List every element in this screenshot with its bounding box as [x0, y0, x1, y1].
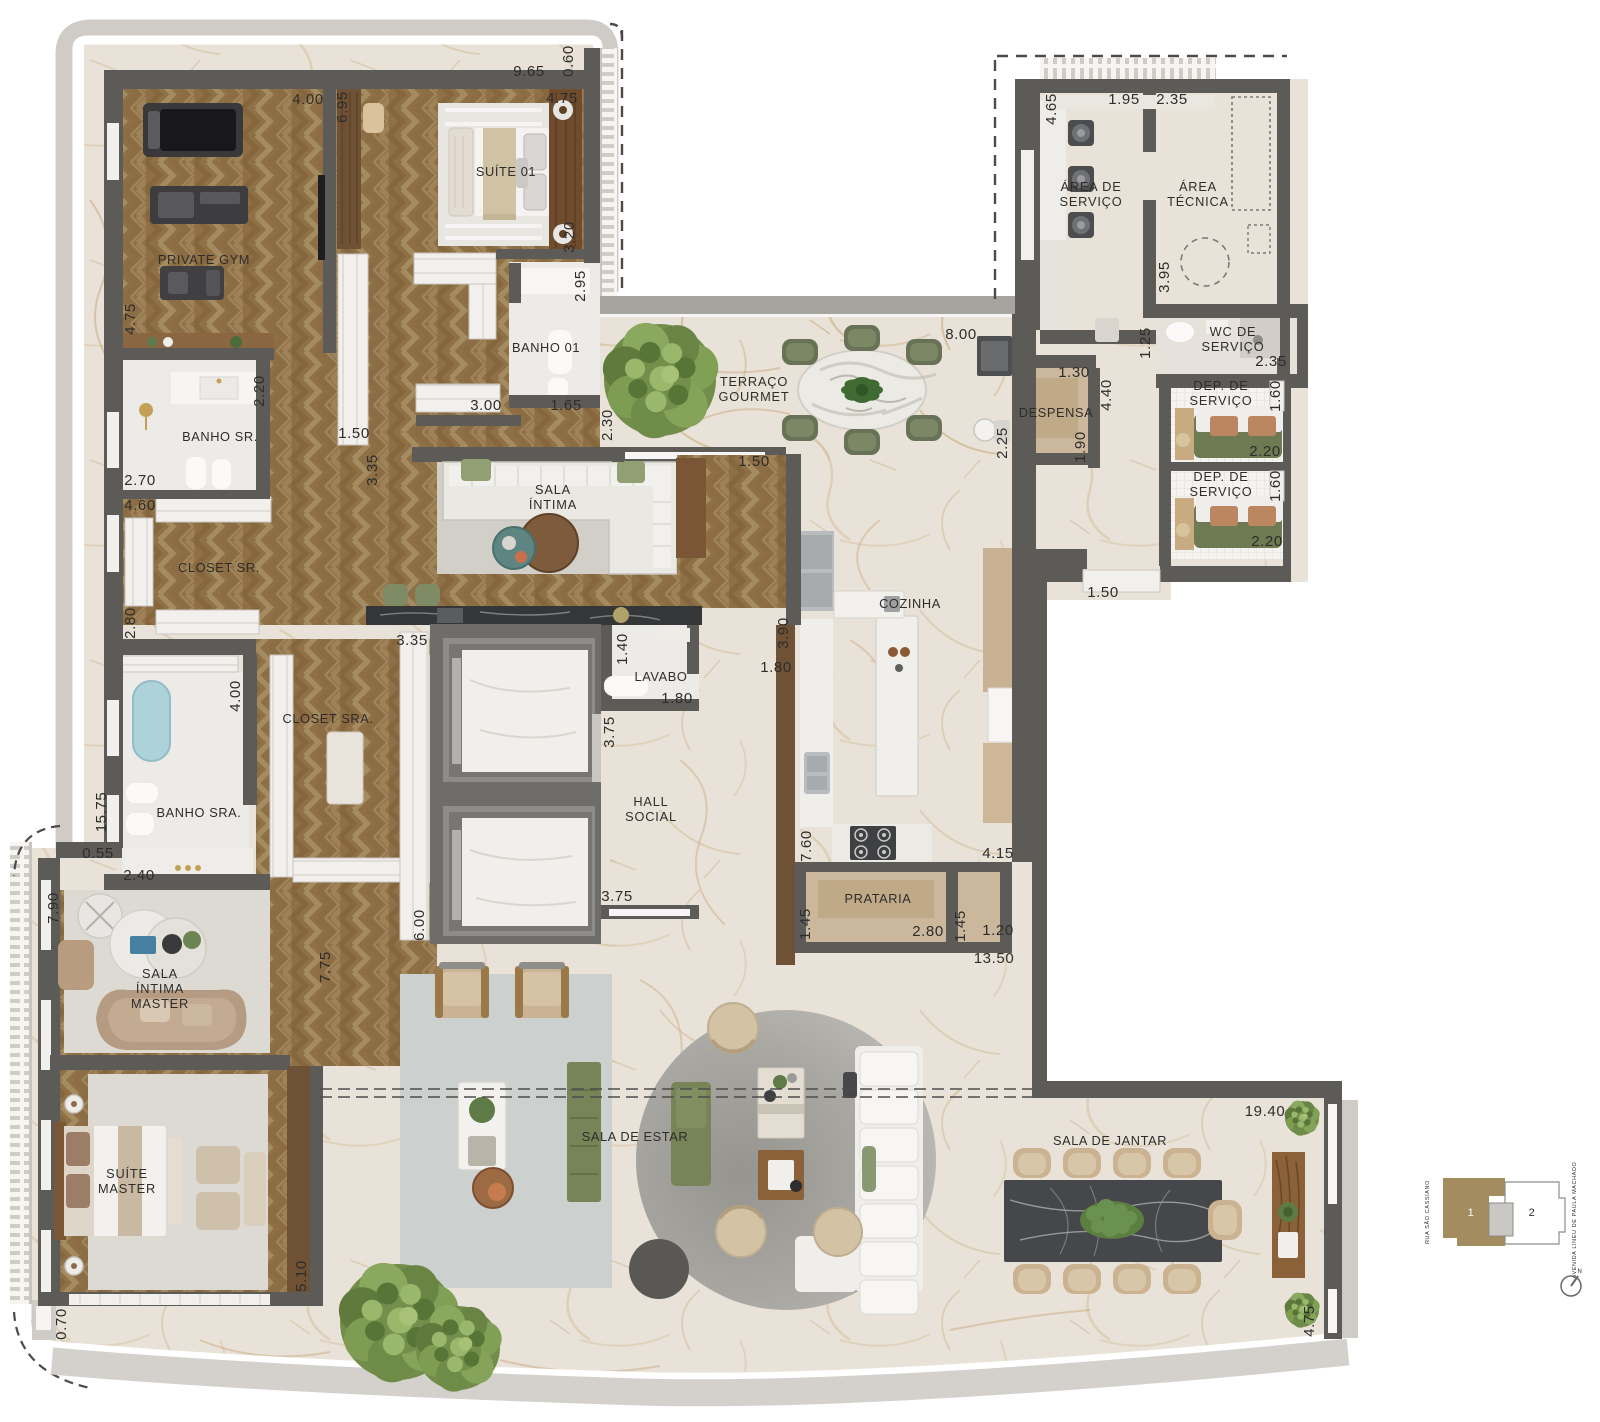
- svg-text:ÁREA: ÁREA: [1179, 179, 1217, 194]
- svg-text:6.95: 6.95: [334, 91, 351, 123]
- svg-text:TÉCNICA: TÉCNICA: [1167, 194, 1229, 209]
- svg-text:3.90: 3.90: [775, 617, 792, 649]
- svg-text:4.40: 4.40: [1098, 379, 1115, 411]
- svg-text:1: 1: [1468, 1207, 1475, 1219]
- svg-text:1.95: 1.95: [1108, 91, 1140, 108]
- svg-text:SUÍTE 01: SUÍTE 01: [476, 164, 536, 179]
- svg-text:DEP. DE: DEP. DE: [1193, 469, 1248, 484]
- svg-text:7.60: 7.60: [798, 830, 815, 862]
- svg-text:1.80: 1.80: [760, 659, 792, 676]
- svg-text:DESPENSA: DESPENSA: [1019, 405, 1094, 420]
- svg-text:2.35: 2.35: [1156, 91, 1188, 108]
- svg-text:2.35: 2.35: [1255, 353, 1287, 370]
- svg-text:2.95: 2.95: [572, 270, 589, 302]
- svg-text:3.95: 3.95: [1156, 261, 1173, 293]
- svg-text:8.00: 8.00: [945, 326, 977, 343]
- svg-text:1.60: 1.60: [1267, 470, 1284, 502]
- svg-text:5.10: 5.10: [293, 1260, 310, 1292]
- svg-text:1.90: 1.90: [1072, 431, 1089, 463]
- svg-text:PRATARIA: PRATARIA: [845, 891, 912, 906]
- svg-text:WC DE: WC DE: [1210, 324, 1257, 339]
- svg-text:COZINHA: COZINHA: [879, 596, 941, 611]
- svg-text:MASTER: MASTER: [98, 1181, 156, 1196]
- svg-text:1.60: 1.60: [1267, 380, 1284, 412]
- svg-text:SALA: SALA: [535, 482, 571, 497]
- svg-text:4.75: 4.75: [546, 90, 578, 107]
- svg-text:LAVABO: LAVABO: [635, 669, 688, 684]
- svg-text:GOURMET: GOURMET: [718, 389, 789, 404]
- svg-text:1.80: 1.80: [661, 690, 693, 707]
- svg-text:2: 2: [1529, 1207, 1536, 1219]
- svg-text:4.00: 4.00: [227, 680, 244, 712]
- svg-text:6.00: 6.00: [411, 909, 428, 941]
- svg-text:BANHO 01: BANHO 01: [512, 340, 580, 355]
- svg-text:1.65: 1.65: [550, 397, 582, 414]
- svg-text:SERVIÇO: SERVIÇO: [1190, 393, 1253, 408]
- svg-text:15.75: 15.75: [93, 792, 110, 833]
- svg-text:7.75: 7.75: [317, 951, 334, 983]
- svg-text:SUÍTE: SUÍTE: [106, 1166, 148, 1181]
- svg-text:2.20: 2.20: [251, 375, 268, 407]
- svg-text:3.20: 3.20: [561, 221, 578, 253]
- svg-text:SALA: SALA: [142, 966, 178, 981]
- svg-text:HALL: HALL: [633, 794, 668, 809]
- svg-text:CLOSET SR.: CLOSET SR.: [178, 560, 260, 575]
- svg-text:AVENIDA LINEU DE PAULA MACHADO: AVENIDA LINEU DE PAULA MACHADO: [1572, 1161, 1578, 1278]
- svg-text:BANHO SRA.: BANHO SRA.: [157, 805, 242, 820]
- svg-text:4.60: 4.60: [124, 497, 156, 514]
- svg-text:2.20: 2.20: [1251, 533, 1283, 550]
- svg-text:ÍNTIMA: ÍNTIMA: [529, 497, 577, 512]
- svg-text:SERVIÇO: SERVIÇO: [1190, 484, 1253, 499]
- svg-text:4.00: 4.00: [292, 91, 324, 108]
- svg-text:PRIVATE GYM: PRIVATE GYM: [158, 252, 250, 267]
- svg-text:4.15: 4.15: [982, 845, 1014, 862]
- svg-text:0.60: 0.60: [560, 45, 577, 77]
- svg-text:3.00: 3.00: [470, 397, 502, 414]
- svg-text:SERVIÇO: SERVIÇO: [1060, 194, 1123, 209]
- svg-text:SALA DE JANTAR: SALA DE JANTAR: [1053, 1133, 1167, 1148]
- svg-text:1.50: 1.50: [338, 425, 370, 442]
- svg-text:1.50: 1.50: [738, 453, 770, 470]
- svg-text:SALA DE ESTAR: SALA DE ESTAR: [582, 1129, 688, 1144]
- svg-text:1.25: 1.25: [1137, 327, 1154, 359]
- svg-text:2.80: 2.80: [912, 923, 944, 940]
- svg-text:CLOSET SRA.: CLOSET SRA.: [283, 711, 374, 726]
- svg-text:BANHO SR.: BANHO SR.: [182, 429, 258, 444]
- svg-text:1.45: 1.45: [797, 908, 814, 940]
- svg-text:2.20: 2.20: [1249, 443, 1281, 460]
- svg-text:4.65: 4.65: [1043, 93, 1060, 125]
- svg-text:13.50: 13.50: [974, 950, 1015, 967]
- svg-text:1.40: 1.40: [614, 633, 631, 665]
- svg-text:SERVIÇO: SERVIÇO: [1202, 339, 1265, 354]
- svg-text:3.75: 3.75: [601, 888, 633, 905]
- svg-text:1.30: 1.30: [1058, 364, 1090, 381]
- svg-text:0.70: 0.70: [53, 1308, 70, 1340]
- svg-text:2.25: 2.25: [994, 427, 1011, 459]
- svg-text:3.35: 3.35: [396, 632, 428, 649]
- svg-text:2.40: 2.40: [123, 867, 155, 884]
- svg-text:4.75: 4.75: [1301, 1305, 1318, 1337]
- svg-text:0.55: 0.55: [82, 845, 114, 862]
- svg-text:ÍNTIMA: ÍNTIMA: [136, 981, 184, 996]
- svg-text:RUA SÃO CASSIANO: RUA SÃO CASSIANO: [1424, 1180, 1431, 1244]
- svg-text:ÁREA DE: ÁREA DE: [1060, 179, 1121, 194]
- svg-text:2.80: 2.80: [122, 607, 139, 639]
- svg-text:DEP. DE: DEP. DE: [1193, 378, 1248, 393]
- svg-text:2.30: 2.30: [599, 409, 616, 441]
- svg-text:2.70: 2.70: [124, 472, 156, 489]
- svg-text:3.75: 3.75: [601, 716, 618, 748]
- svg-text:TERRAÇO: TERRAÇO: [720, 374, 788, 389]
- svg-text:9.65: 9.65: [513, 63, 545, 80]
- svg-text:N: N: [1578, 1269, 1583, 1275]
- svg-text:1.50: 1.50: [1087, 584, 1119, 601]
- svg-text:3.35: 3.35: [364, 454, 381, 486]
- svg-text:MASTER: MASTER: [131, 996, 189, 1011]
- svg-text:19.40: 19.40: [1245, 1103, 1286, 1120]
- svg-text:7.90: 7.90: [45, 892, 62, 924]
- svg-text:SOCIAL: SOCIAL: [625, 809, 677, 824]
- svg-text:1.45: 1.45: [952, 910, 969, 942]
- svg-text:1.20: 1.20: [982, 922, 1014, 939]
- svg-text:4.75: 4.75: [122, 303, 139, 335]
